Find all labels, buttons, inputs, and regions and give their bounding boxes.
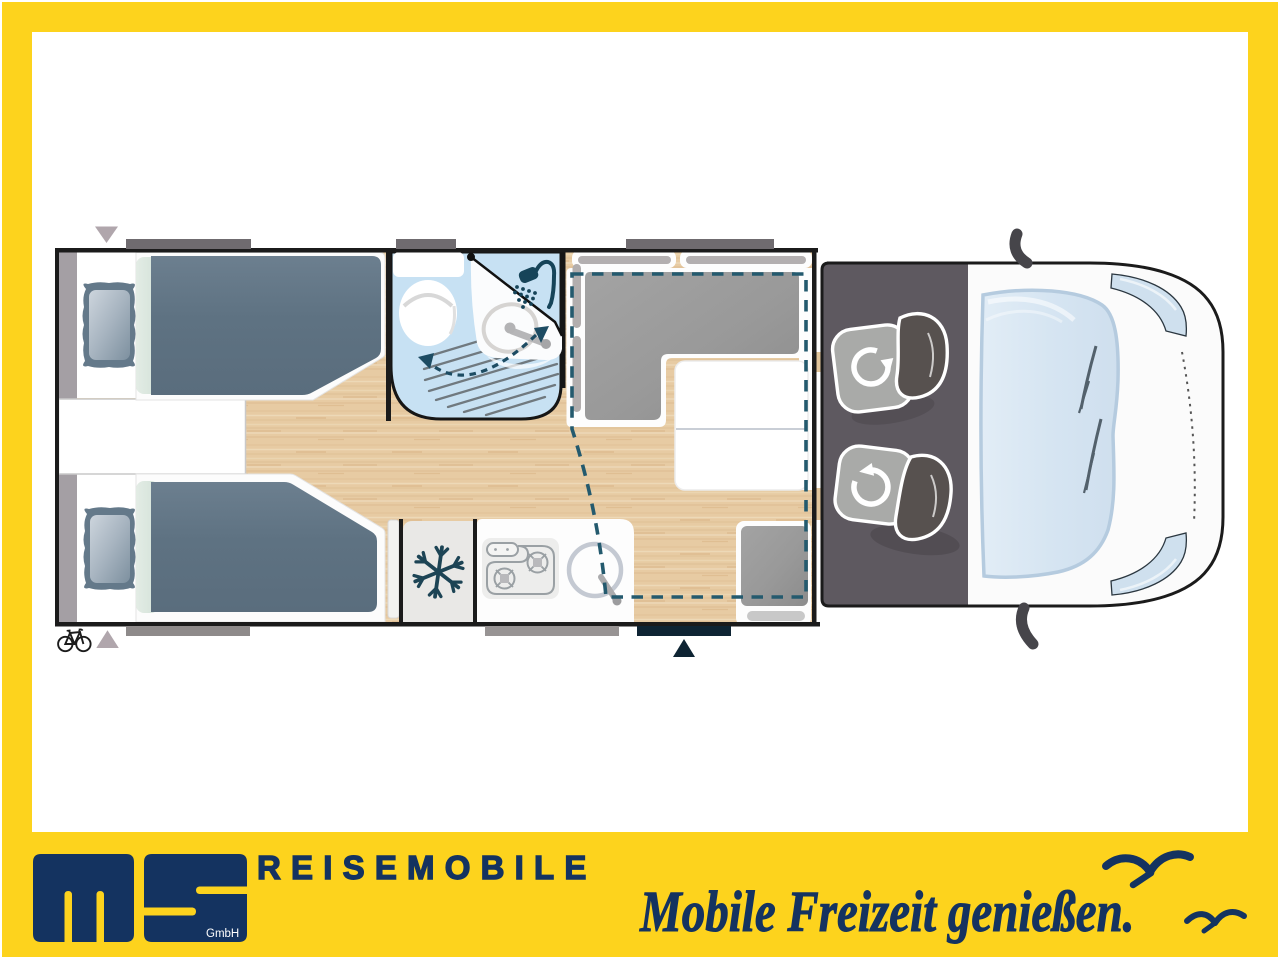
svg-text:Mobile Freizeit genießen.: Mobile Freizeit genießen.: [639, 880, 1134, 944]
svg-text:REISEMOBILE: REISEMOBILE: [257, 849, 597, 886]
svg-text:GmbH: GmbH: [206, 928, 239, 940]
